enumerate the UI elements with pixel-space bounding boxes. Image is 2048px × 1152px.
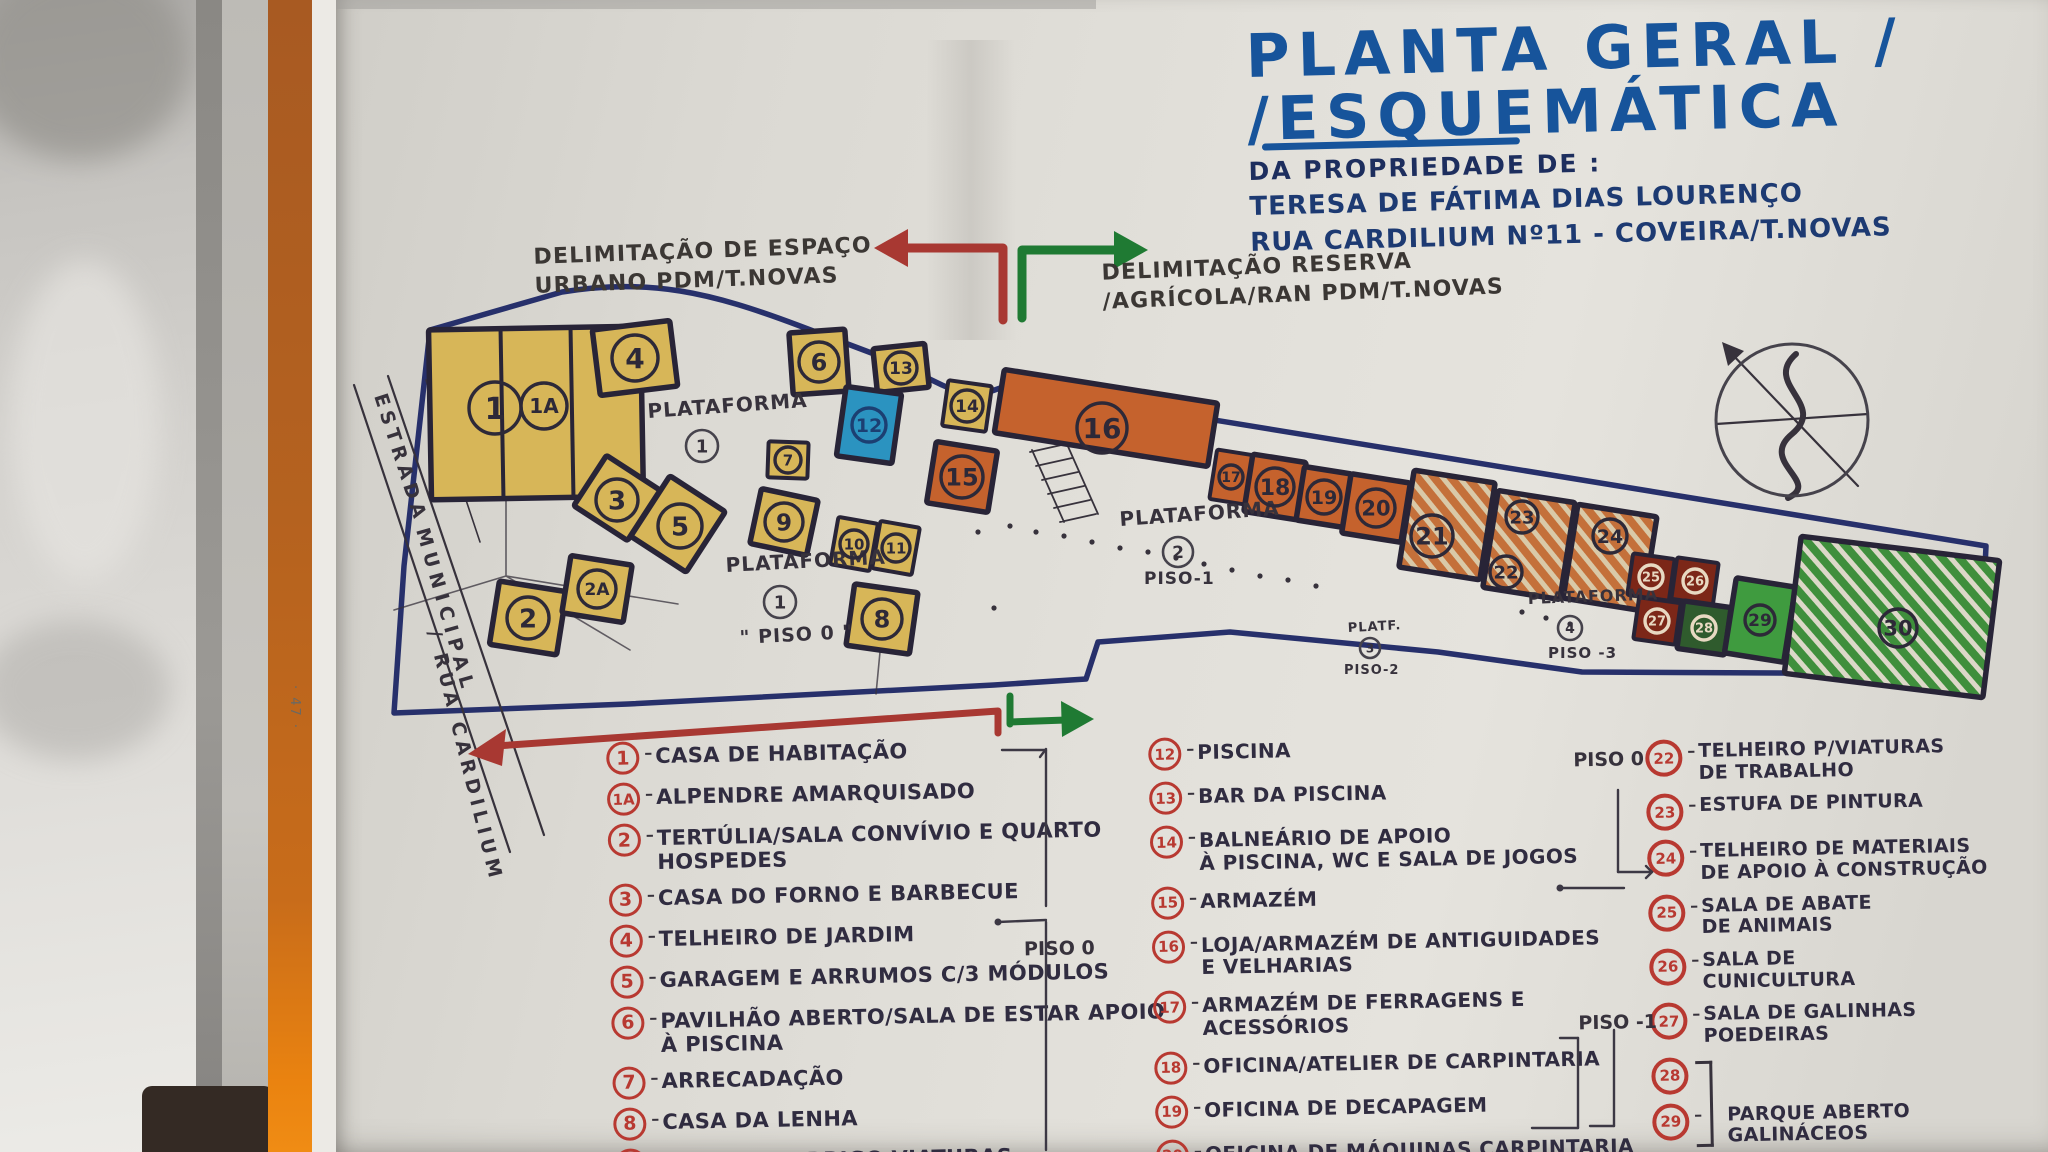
table-shadow xyxy=(142,1086,274,1152)
legend-item-label: OFICINA/ATELIER DE CARPINTARIA xyxy=(1203,1043,1600,1077)
platform-dot xyxy=(1007,523,1012,528)
platform-dot xyxy=(1229,567,1234,572)
building-number-text: 23 xyxy=(1509,507,1534,528)
floor-label: PISO 0 xyxy=(1573,748,1644,771)
legend-item-label: LOJA/ARMAZÉM DE ANTIGUIDADES E VELHARIAS xyxy=(1201,922,1601,979)
legend-item-label: BAR DA PISCINA xyxy=(1198,777,1387,807)
legend-item-15: 15–ARMAZÉM xyxy=(1151,877,1632,919)
legend-item-2: 2–TERTÚLIA/SALA CONVÍVIO E QUARTO HOSPED… xyxy=(608,813,1179,876)
legend-item-22: PISO 022–TELHEIRO P/VIATURAS DE TRABALHO xyxy=(1645,732,2046,785)
legend-dash: – xyxy=(1187,783,1195,802)
legend-dash: – xyxy=(1192,1053,1200,1072)
legend-dash: – xyxy=(649,1008,657,1027)
platform-dot xyxy=(1117,545,1122,550)
building-number-text: 20 xyxy=(1361,497,1390,521)
building-number-text: 21 xyxy=(1415,523,1448,551)
legend-dash: – xyxy=(1188,827,1196,846)
compass-icon xyxy=(1782,354,1803,498)
building-number-text: 8 xyxy=(874,606,891,634)
legend-item-26: 26–SALA DE CUNICULTURA xyxy=(1649,941,2048,994)
building-number-text: 1A xyxy=(529,394,559,418)
legend-dash: – xyxy=(644,743,652,762)
legend-dash: – xyxy=(1687,741,1695,760)
plan-label: PLATAFORMA xyxy=(647,388,809,423)
legend-item-label: PISCINA xyxy=(1197,735,1291,764)
legend-number-badge: 6 xyxy=(611,1006,645,1040)
legend-dash: – xyxy=(647,885,655,904)
building-number-text: 25 xyxy=(1642,571,1660,586)
legend-item-label: CASA DA LENHA xyxy=(662,1103,858,1135)
legend-number-badge: 28 xyxy=(1651,1057,1689,1095)
legend-number-badge: 24 xyxy=(1647,840,1685,878)
building-number-text: 18 xyxy=(1260,476,1291,501)
legend-item-label: GARAGEM E ARRUMOS C/3 MÓDULOS xyxy=(659,956,1109,993)
legend-item-label: ARMAZÉM DE FERRAGENS E ACESSÓRIOS xyxy=(1202,982,1634,1040)
boundary-arrow-green-bottom xyxy=(1010,696,1066,724)
marble-streak xyxy=(0,0,190,160)
legend-item-label: SALA DE ABATE DE ANIMAIS xyxy=(1701,890,1873,939)
platform-dot xyxy=(1145,549,1150,554)
legend-number-badge: 13 xyxy=(1149,781,1183,815)
building-number-text: 2A xyxy=(585,580,611,600)
boundary-arrow-red-top xyxy=(900,248,1003,320)
legend-number-badge: 9 xyxy=(614,1148,648,1152)
platform-number-text: 4 xyxy=(1565,621,1575,637)
legend-dash: – xyxy=(648,926,656,945)
legend-number-badge: 1 xyxy=(606,741,640,775)
building-number-text: 2 xyxy=(519,604,537,634)
legend-item-14: 14–BALNEÁRIO DE APOIO À PISCINA, WC E SA… xyxy=(1150,817,1631,876)
legend-item-8: 8–CASA DA LENHA xyxy=(613,1097,1184,1141)
legend-item-29: 29–PARQUE ABERTO GALINÁCEOS xyxy=(1652,1096,2048,1149)
title-block: PLANTA GERAL / /ESQUEMÁTICA DA PROPRIEDA… xyxy=(1245,7,2040,258)
legend-number-badge: 14 xyxy=(1150,825,1184,859)
building-number-text: 19 xyxy=(1311,487,1337,509)
legend-number-badge: 12 xyxy=(1148,737,1182,771)
legend-column-1: 1–CASA DE HABITAÇÃO1A–ALPENDRE AMARQUISA… xyxy=(606,731,1186,1152)
building-number-text: 1 xyxy=(485,392,506,427)
legend-column-3: PISO 022–TELHEIRO P/VIATURAS DE TRABALHO… xyxy=(1645,732,2048,1152)
legend-item-24: 24–TELHEIRO DE MATERIAIS DE APOIO À CONS… xyxy=(1647,833,2048,886)
legend-number-badge: 7 xyxy=(612,1066,646,1100)
platform-number-text: 2 xyxy=(1172,543,1184,563)
building-number-text: 13 xyxy=(889,359,913,379)
legend-dash: – xyxy=(645,784,653,803)
legend-number-badge: 1A xyxy=(607,782,641,816)
legend-dash: – xyxy=(1193,1097,1201,1116)
legend-dash: – xyxy=(1689,841,1697,860)
legend-item-label: ESTUFA DE PINTURA xyxy=(1699,789,1923,817)
legend-item-label: ALPENDRE AMARQUISADO xyxy=(656,776,976,810)
legend-dash: – xyxy=(1688,795,1696,814)
floor-label: PISO 0 xyxy=(1024,937,1095,960)
legend-dash: – xyxy=(1194,1141,1202,1152)
legend-item-9: 9–TELHEIRO/ABRIGO VIATURAS xyxy=(614,1138,1185,1152)
legend-item-label: TELHEIRO/ABRIGO VIATURAS xyxy=(663,1141,1013,1152)
legend-item-1A: 1A–ALPENDRE AMARQUISADO xyxy=(607,772,1178,816)
marble-streak xyxy=(0,620,170,760)
building-number-text: 11 xyxy=(886,539,907,557)
platform-number-text: 1 xyxy=(696,436,709,457)
platform-dot xyxy=(975,529,980,534)
building-number-text: 6 xyxy=(811,349,828,377)
floor-label: PISO -1 xyxy=(1578,1011,1657,1035)
building-number-text: 28 xyxy=(1695,622,1713,637)
platform-dot xyxy=(1033,529,1038,534)
plan-label: PISO-1 xyxy=(1144,569,1215,589)
platform-dot xyxy=(1257,573,1262,578)
building-number-text: 4 xyxy=(625,342,644,375)
legend-dash: – xyxy=(1189,888,1197,907)
binder-spine xyxy=(268,0,312,1152)
building-number-text: 30 xyxy=(1883,617,1912,641)
legend-item-18: 18–OFICINA/ATELIER DE CARPINTARIA xyxy=(1154,1043,1635,1085)
legend-item-13: 13–BAR DA PISCINA xyxy=(1149,773,1630,815)
legend-number-badge: 18 xyxy=(1154,1051,1188,1085)
stairs-icon xyxy=(1030,442,1098,522)
legend-item-6: 6–PAVILHÃO ABERTO/SALA DE ESTAR APOIO À … xyxy=(611,996,1182,1059)
legend-item-label: TELHEIRO DE JARDIM xyxy=(659,919,915,952)
legend-item-3: 3–CASA DO FORNO E BARBECUE xyxy=(609,873,1180,917)
legend-number-badge: 8 xyxy=(613,1107,647,1141)
arrowhead xyxy=(874,229,908,267)
building-number-text: 10 xyxy=(844,535,865,553)
legend-number-badge: 16 xyxy=(1152,930,1186,964)
legend-number-badge: 4 xyxy=(610,924,644,958)
platform-number-text: 3 xyxy=(1366,641,1374,655)
legend-number-badge: 26 xyxy=(1649,948,1687,986)
plan-label: " PISO 0 " xyxy=(739,621,854,649)
building-number-text: 29 xyxy=(1748,611,1772,631)
arrowhead xyxy=(1061,701,1094,737)
platform-dot xyxy=(1201,561,1206,566)
legend-number-badge: 29 xyxy=(1652,1103,1690,1141)
legend-item-label: CASA DO FORNO E BARBECUE xyxy=(658,876,1019,911)
legend-number-badge: 19 xyxy=(1155,1095,1189,1129)
legend-number-badge: 17 xyxy=(1153,991,1187,1025)
building-number-text: 17 xyxy=(1221,470,1240,486)
legend-item-20: 20–OFICINA DE MÁQUINAS CARPINTARIA xyxy=(1156,1130,1637,1152)
legend-item-label: ARMAZÉM xyxy=(1200,883,1318,912)
legend-dash: – xyxy=(651,1109,659,1128)
plan-label: PLATF. xyxy=(1347,618,1401,636)
legend-number-badge: 15 xyxy=(1151,886,1185,920)
building-number-text: 7 xyxy=(783,451,793,469)
legend-item-label: TERTÚLIA/SALA CONVÍVIO E QUARTO HOSPEDES xyxy=(657,813,1179,875)
marble-streak xyxy=(10,260,160,580)
legend-number-badge: 22 xyxy=(1645,739,1683,777)
legend-item-label: BALNEÁRIO DE APOIO À PISCINA, WC E SALA … xyxy=(1199,818,1579,875)
legend-item-label: ARRECADAÇÃO xyxy=(661,1062,844,1093)
platform-dot xyxy=(1543,615,1548,620)
plan-label: PISO-2 xyxy=(1344,663,1399,678)
building-number-text: 22 xyxy=(1493,562,1518,583)
building-number-text: 26 xyxy=(1686,575,1704,590)
platform-dot xyxy=(1089,539,1094,544)
margin-note: · 47 · xyxy=(287,685,302,730)
legend-number-badge: 20 xyxy=(1156,1139,1190,1152)
plan-label: PISO -3 xyxy=(1548,644,1617,662)
folder-gap xyxy=(222,0,268,1152)
building-number-text: 3 xyxy=(608,486,626,516)
legend-dash: – xyxy=(1191,992,1199,1011)
platform-dot xyxy=(991,605,996,610)
urban-boundary-label: DELIMITAÇÃO DE ESPAÇO URBANO PDM/T.NOVAS xyxy=(533,232,873,301)
legend-item-label: OFICINA DE DECAPAGEM xyxy=(1204,1089,1488,1121)
legend-item-label: TELHEIRO P/VIATURAS DE TRABALHO xyxy=(1698,734,1945,784)
platform-dot xyxy=(1285,577,1290,582)
legend-number-badge: 5 xyxy=(610,965,644,999)
legend-item-label: CASA DE HABITAÇÃO xyxy=(655,736,908,769)
building-number-text: 12 xyxy=(856,415,882,437)
folder-edge xyxy=(196,0,222,1152)
legend-dash: – xyxy=(648,967,656,986)
legend-number-badge: 23 xyxy=(1646,794,1684,832)
legend-item-label: SALA DE GALINHAS POEDEIRAS xyxy=(1703,998,1917,1047)
legend-item-16: PISO 016–LOJA/ARMAZÉM DE ANTIGUIDADES E … xyxy=(1152,921,1633,980)
legend-dash: – xyxy=(1690,896,1698,915)
legend-dash: – xyxy=(1691,950,1699,969)
legend-item-7: 7–ARRECADAÇÃO xyxy=(612,1056,1183,1100)
table-edge xyxy=(336,0,1096,9)
platform-dot xyxy=(1061,533,1066,538)
photo-scene: PLATAFORMAPLATAFORMA" PISO 0 "PLATAFORMA… xyxy=(0,0,2048,1152)
table-surface xyxy=(0,0,200,1152)
platform-dot xyxy=(1519,609,1524,614)
legend-item-label: SALA DE CUNICULTURA xyxy=(1702,945,1856,993)
legend-number-badge: 25 xyxy=(1648,894,1686,932)
legend-dash: – xyxy=(1692,1004,1700,1023)
legend-item-23: 23–ESTUFA DE PINTURA xyxy=(1646,787,2047,832)
building-number-text: 14 xyxy=(955,397,979,417)
legend-number-badge: 3 xyxy=(609,883,643,917)
legend-item-label: OFICINA DE MÁQUINAS CARPINTARIA xyxy=(1205,1131,1634,1152)
legend-dash: – xyxy=(646,825,654,844)
building-number-text: 9 xyxy=(776,510,792,536)
building-number-text: 16 xyxy=(1083,412,1122,445)
plan-label: PLATAFORMA xyxy=(1119,496,1281,531)
legend-item-label: TELHEIRO DE MATERIAIS DE APOIO À CONSTRU… xyxy=(1700,834,1988,885)
building-number-text: 24 xyxy=(1597,526,1623,548)
legend-item-19: 19–OFICINA DE DECAPAGEM xyxy=(1155,1087,1636,1129)
compass-icon xyxy=(1716,352,1868,486)
building-number-text: 15 xyxy=(945,464,978,492)
legend-item-27: PISO -127–SALA DE GALINHAS POEDEIRAS xyxy=(1650,996,2048,1049)
building-number-text: 27 xyxy=(1648,615,1666,630)
legend-dash: – xyxy=(1190,932,1198,951)
legend-dash: – xyxy=(1694,1105,1702,1124)
legend-item-25: 25–SALA DE ABATE DE ANIMAIS xyxy=(1648,887,2048,940)
legend-item-28: 28 xyxy=(1651,1050,2048,1095)
legend-item-label: PARQUE ABERTO GALINÁCEOS xyxy=(1727,1099,1911,1148)
legend-item-5: 5–GARAGEM E ARRUMOS C/3 MÓDULOS xyxy=(610,955,1181,999)
legend-dash: – xyxy=(1186,739,1194,758)
platform-number-text: 1 xyxy=(774,592,787,613)
platform-dot xyxy=(1313,583,1318,588)
legend-item-label: PAVILHÃO ABERTO/SALA DE ESTAR APOIO À PI… xyxy=(660,996,1182,1058)
legend-dash: – xyxy=(650,1068,658,1087)
building-number-text: 5 xyxy=(671,512,689,542)
legend-number-badge: 2 xyxy=(608,823,642,857)
legend-item-17: 17–ARMAZÉM DE FERRAGENS E ACESSÓRIOS xyxy=(1153,982,1634,1041)
legend-column-2: 12–PISCINA13–BAR DA PISCINA14–BALNEÁRIO … xyxy=(1148,729,1637,1152)
